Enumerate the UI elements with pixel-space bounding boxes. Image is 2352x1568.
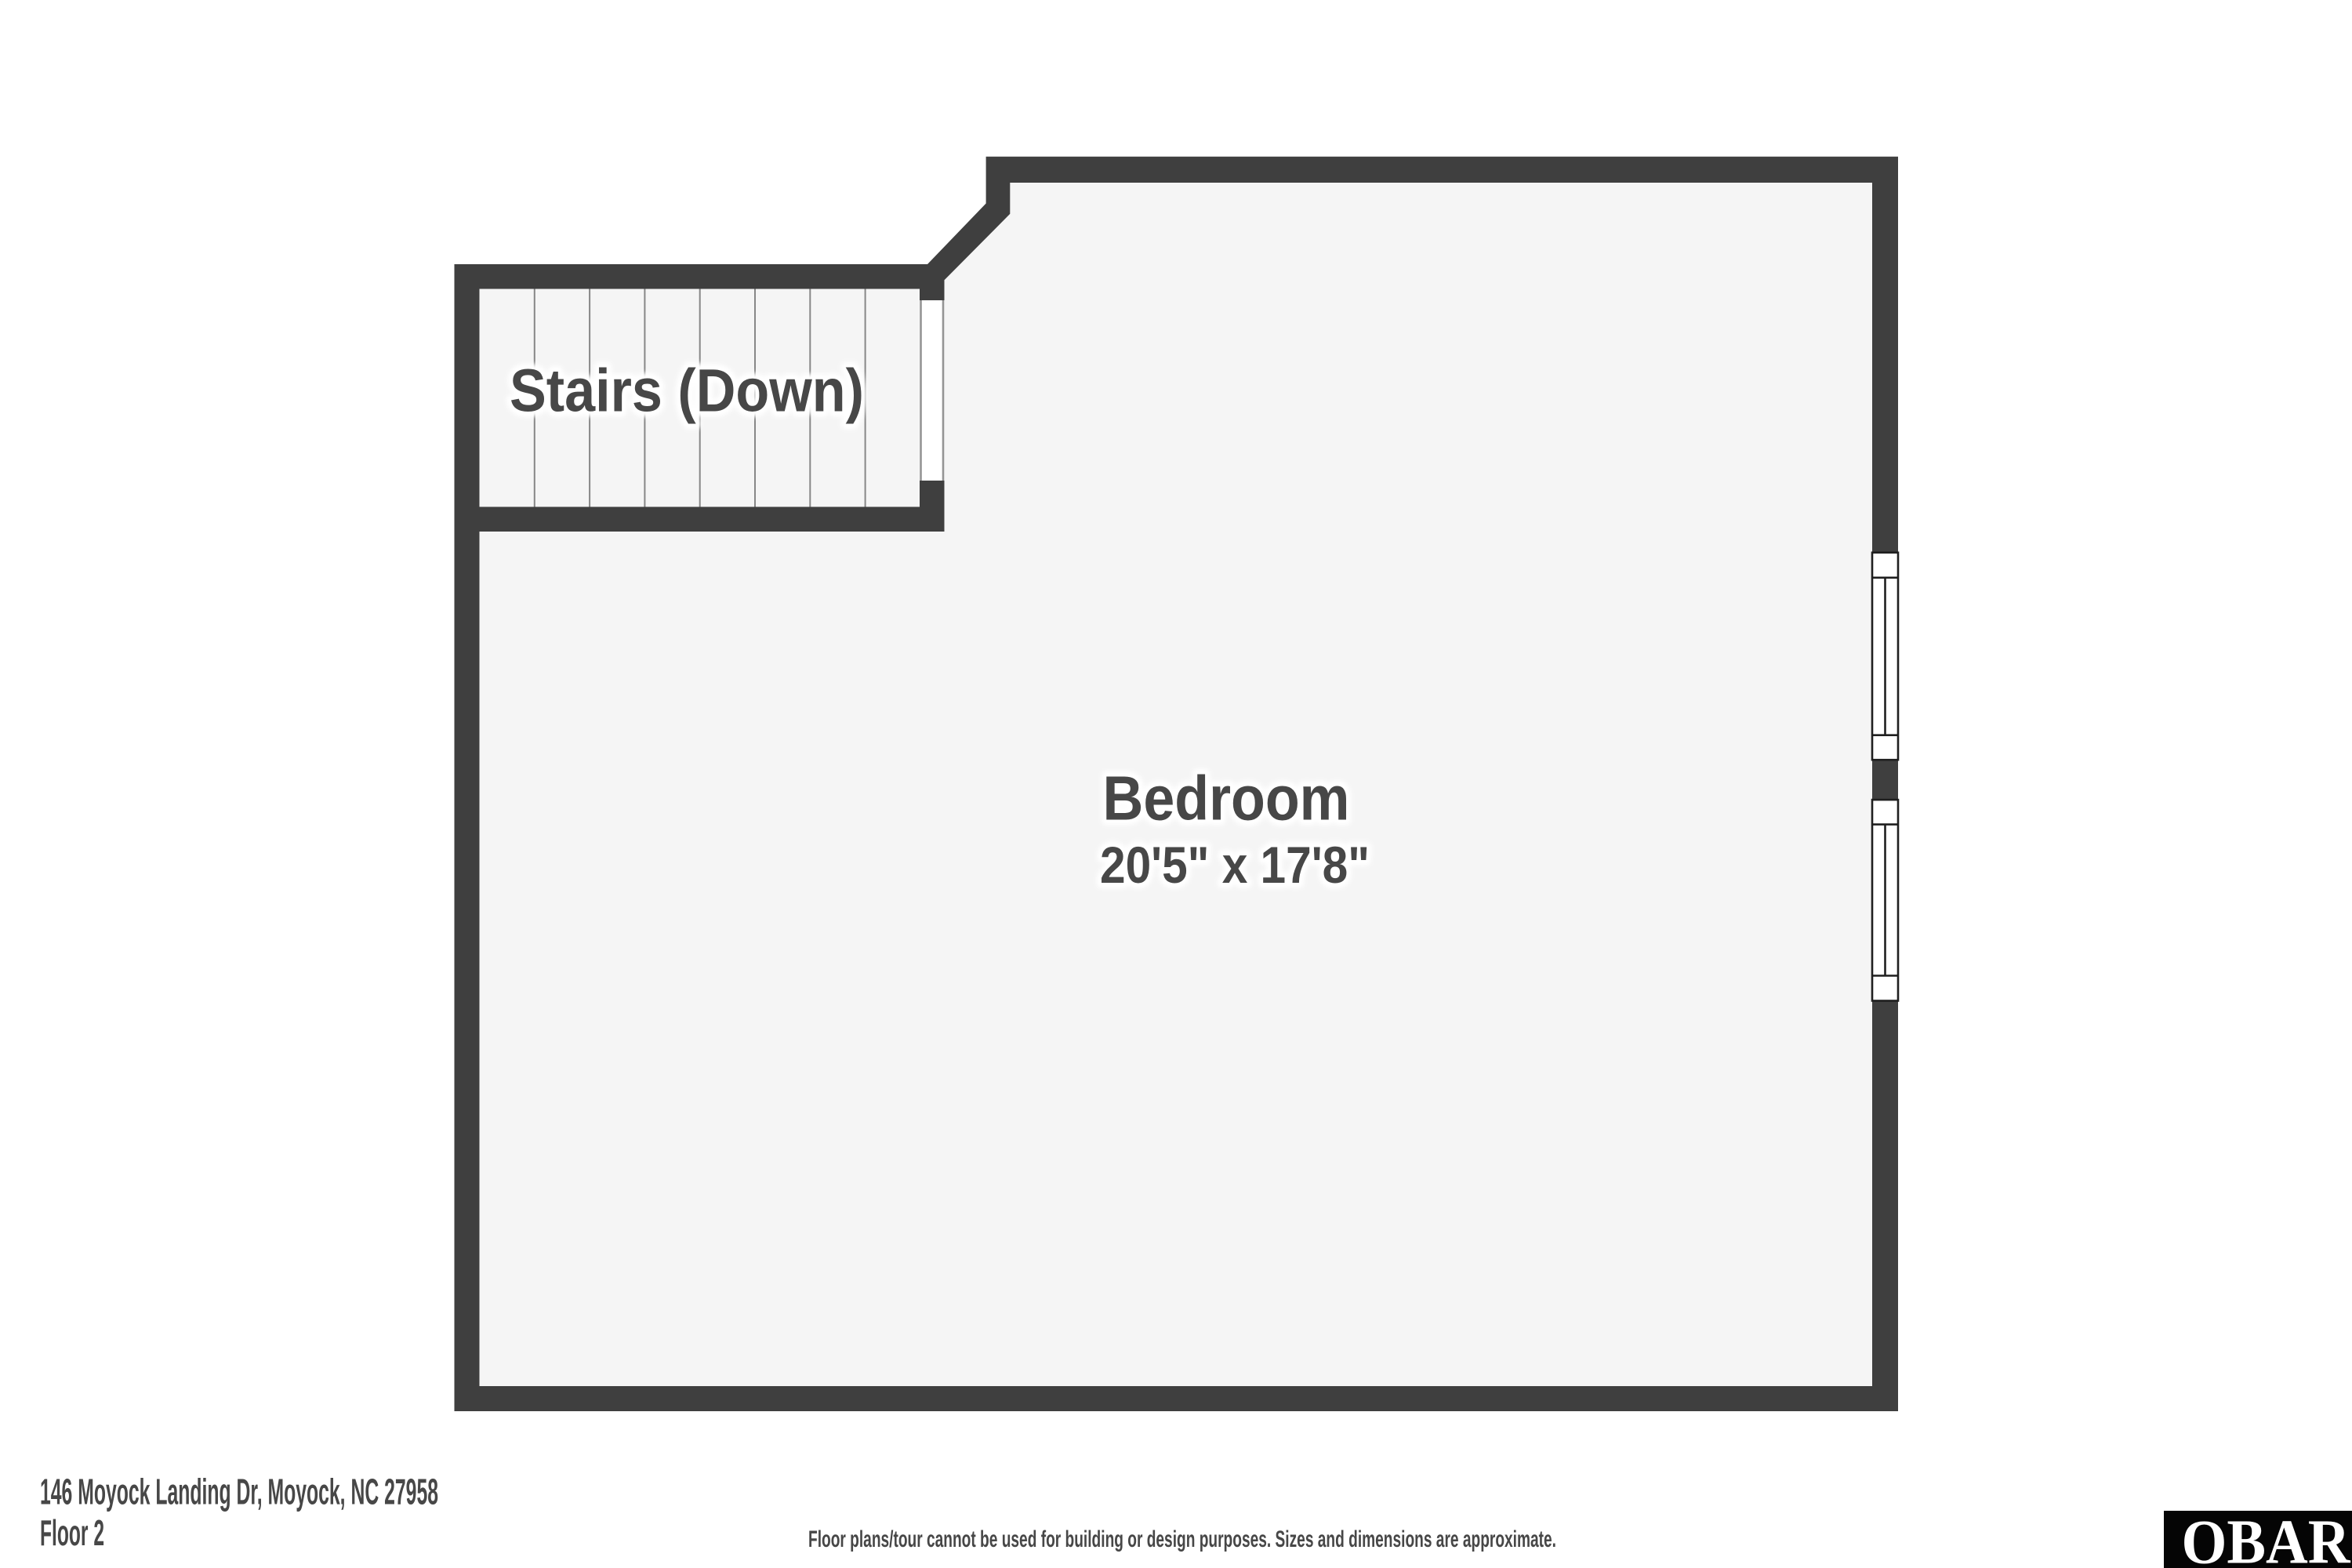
svg-text:OBAR: OBAR (2182, 1507, 2351, 1568)
svg-text:146 Moyock Landing Dr, Moyock,: 146 Moyock Landing Dr, Moyock, NC 27958 (40, 1472, 438, 1512)
svg-text:20'5" x 17'8": 20'5" x 17'8" (1100, 836, 1370, 894)
svg-text:Stairs (Down): Stairs (Down) (510, 358, 864, 425)
svg-text:Floor plans/tour cannot be use: Floor plans/tour cannot be used for buil… (808, 1526, 1556, 1552)
svg-text:Floor 2: Floor 2 (40, 1512, 104, 1553)
svg-text:Bedroom: Bedroom (1103, 764, 1350, 833)
